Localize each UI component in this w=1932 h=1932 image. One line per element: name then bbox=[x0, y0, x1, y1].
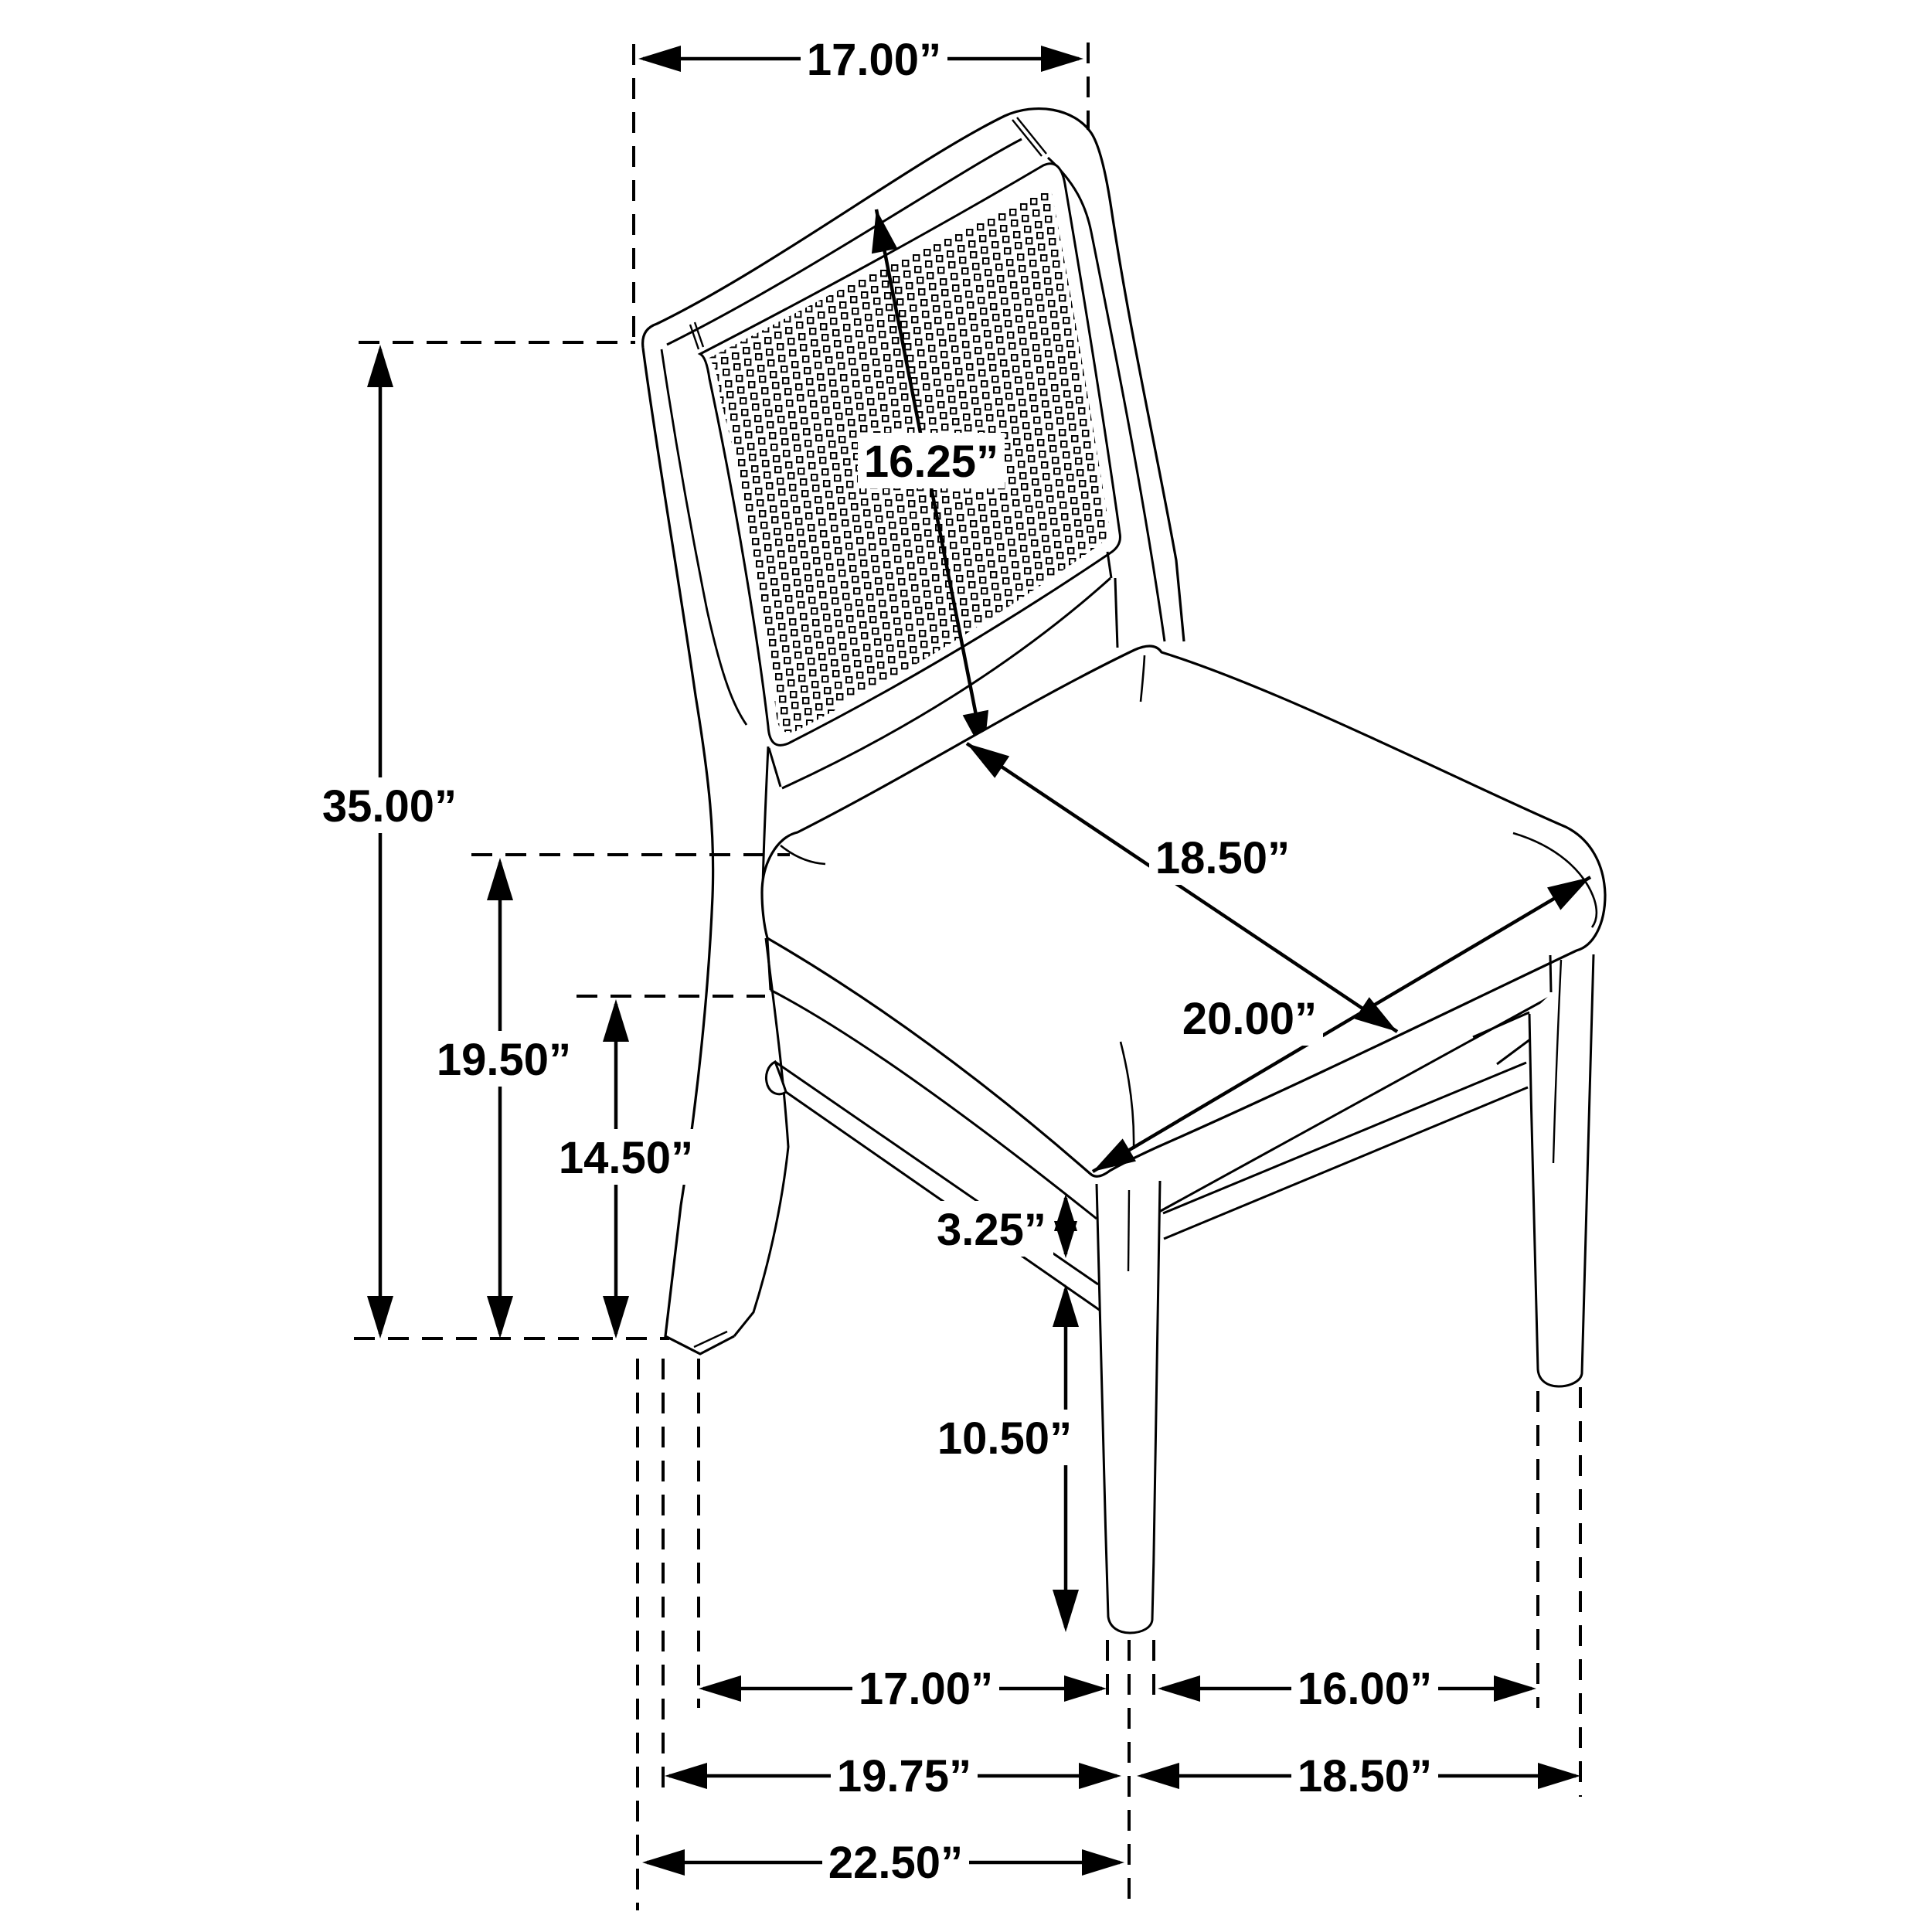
svg-text:14.50”: 14.50” bbox=[559, 1133, 693, 1183]
svg-text:35.00”: 35.00” bbox=[322, 781, 457, 832]
svg-text:17.00”: 17.00” bbox=[807, 35, 941, 85]
svg-text:18.50”: 18.50” bbox=[1298, 1751, 1432, 1801]
svg-text:19.50”: 19.50” bbox=[437, 1035, 571, 1085]
svg-text:10.50”: 10.50” bbox=[937, 1413, 1072, 1464]
svg-text:18.50”: 18.50” bbox=[1155, 833, 1290, 883]
svg-text:17.00”: 17.00” bbox=[859, 1664, 993, 1714]
svg-text:16.25”: 16.25” bbox=[864, 437, 998, 487]
svg-text:3.25”: 3.25” bbox=[937, 1205, 1046, 1255]
svg-text:20.00”: 20.00” bbox=[1182, 994, 1317, 1044]
svg-text:19.75”: 19.75” bbox=[837, 1751, 971, 1801]
svg-text:22.50”: 22.50” bbox=[828, 1838, 963, 1888]
svg-text:16.00”: 16.00” bbox=[1298, 1664, 1432, 1714]
